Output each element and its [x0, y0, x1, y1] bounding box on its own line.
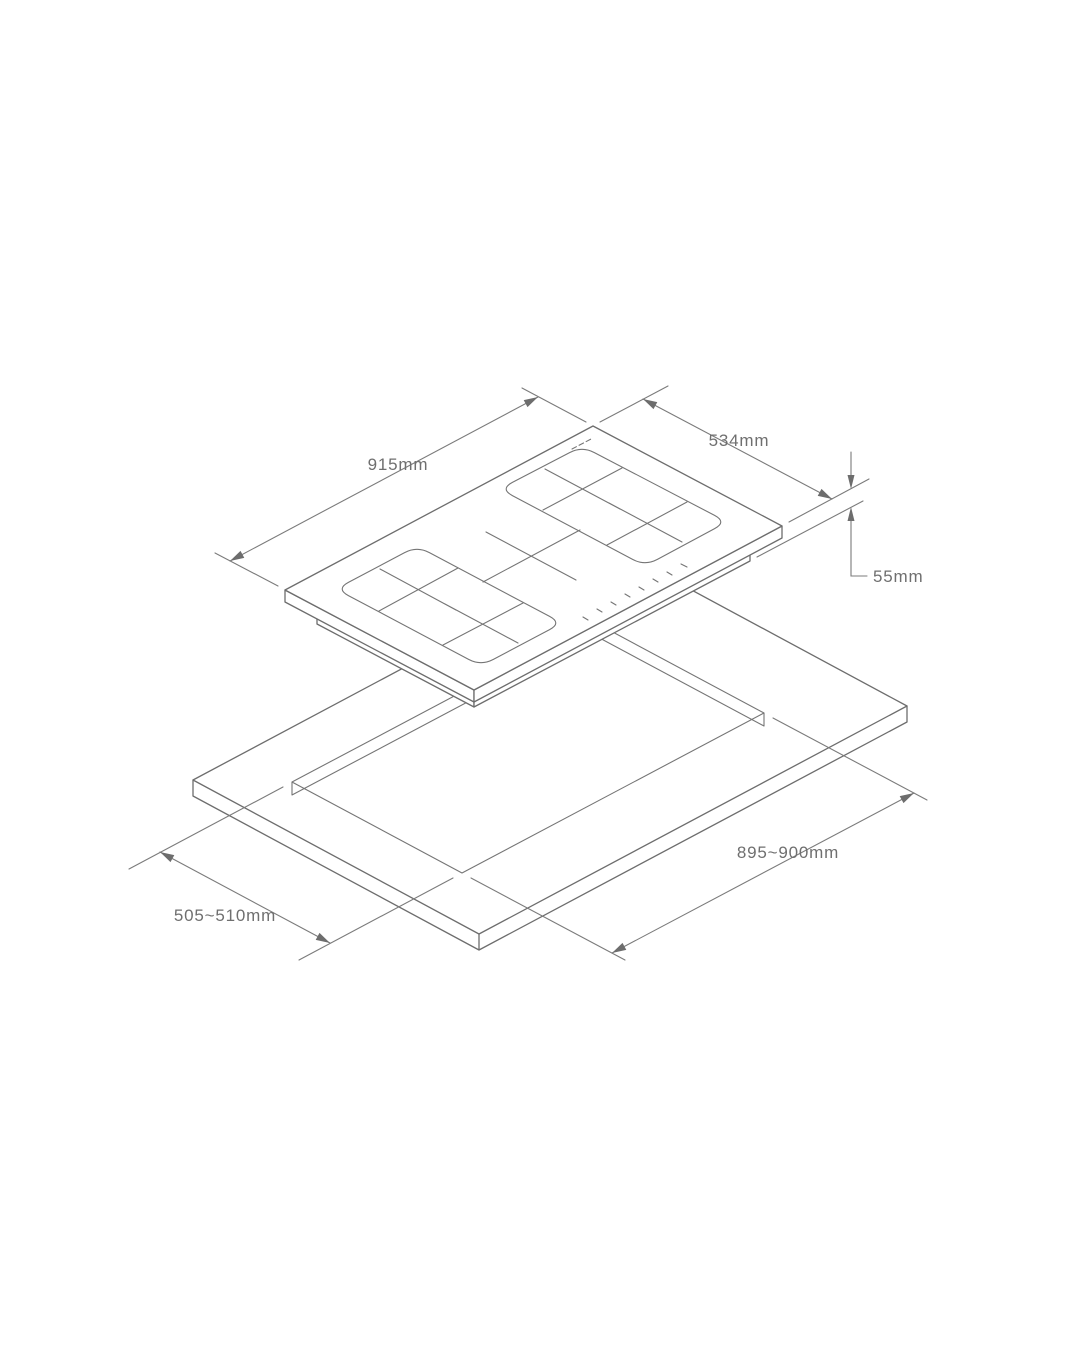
dim-arrow	[316, 933, 330, 943]
hob-depth-label: 534mm	[709, 431, 770, 450]
dim-arrow	[900, 793, 914, 803]
dim-hob-height-lines	[851, 452, 867, 576]
dim-arrow	[160, 852, 174, 862]
dim-cutout-width-line	[160, 852, 330, 943]
cutout-width-label: 505~510mm	[174, 906, 276, 925]
dim-arrow	[818, 489, 832, 499]
dim-arrow	[612, 943, 626, 953]
dim-arrow	[230, 551, 244, 561]
dim-arrow	[524, 397, 538, 407]
cutout-length-label: 895~900mm	[737, 843, 839, 862]
hob-width-label: 915mm	[368, 455, 429, 474]
diagram-canvas: 505~510mm 895~900mm	[0, 0, 1080, 1350]
installation-diagram: 505~510mm 895~900mm	[0, 0, 1080, 1350]
hob-height-label: 55mm	[873, 567, 923, 586]
dim-arrow	[643, 399, 657, 409]
